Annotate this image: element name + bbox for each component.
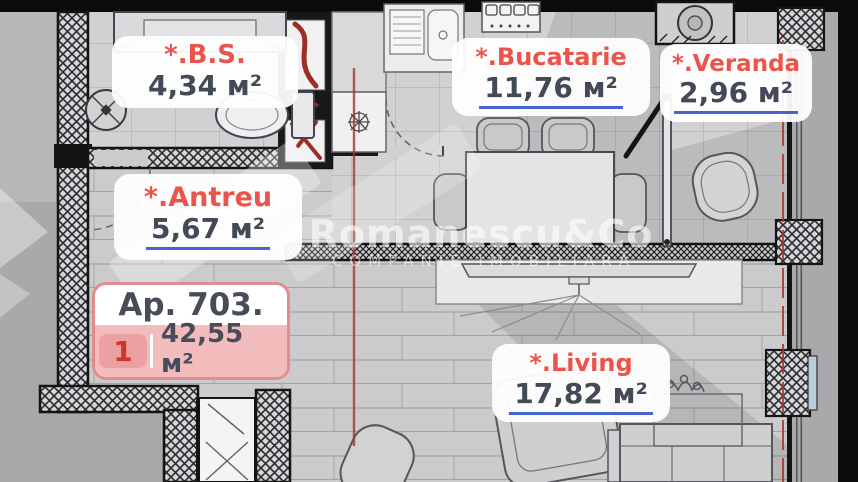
bs-door-opening — [94, 150, 148, 166]
dining-table — [466, 152, 614, 254]
apartment-total-area-value: 42,55 м² — [156, 319, 283, 381]
room-label-antreu: *.Antreu 5,67 м² — [114, 174, 302, 260]
room-area: 2,96 м² — [674, 77, 798, 114]
floor-plan-image: Romanescu&Co COMPANIE IMOBILIARĂ *.B.S. … — [0, 0, 858, 482]
boiler-icon — [656, 2, 734, 44]
apartment-rooms-count: 1 — [99, 334, 147, 368]
fan-icon — [348, 111, 370, 133]
tv-icon — [462, 264, 696, 277]
apartment-info-box: Ap. 703. 1 42,55 м² — [92, 282, 290, 380]
room-label-bs: *.B.S. 4,34 м² — [112, 36, 298, 108]
outside-light-patch — [0, 12, 56, 202]
sofa — [608, 424, 772, 482]
room-area: 11,76 м² — [479, 72, 622, 109]
apartment-summary-row: 1 42,55 м² — [95, 325, 287, 377]
room-area: 5,67 м² — [146, 213, 270, 250]
room-label-living: *.Living 17,82 м² — [492, 344, 670, 422]
kitchen-door-opening — [378, 146, 442, 156]
divider — [150, 334, 153, 368]
room-area: 17,82 м² — [509, 378, 652, 415]
glass-pane — [808, 356, 817, 410]
room-name: *.B.S. — [164, 42, 246, 69]
left-exterior-wall — [58, 12, 88, 412]
room-name: *.Living — [529, 351, 632, 376]
right-edge — [838, 0, 858, 482]
room-name: *.Bucatarie — [475, 45, 626, 70]
room-label-bucatarie: *.Bucatarie 11,76 м² — [452, 38, 650, 116]
room-label-veranda: *.Veranda 2,96 м² — [660, 44, 812, 122]
room-name: *.Antreu — [144, 184, 272, 212]
room-name: *.Veranda — [672, 52, 800, 76]
kitchen-living-wall — [286, 244, 796, 260]
wall-cap — [54, 144, 92, 168]
room-area: 4,34 м² — [148, 70, 262, 102]
stove-icon — [482, 2, 540, 32]
apartment-total-area: 42,55 м² — [156, 319, 283, 381]
